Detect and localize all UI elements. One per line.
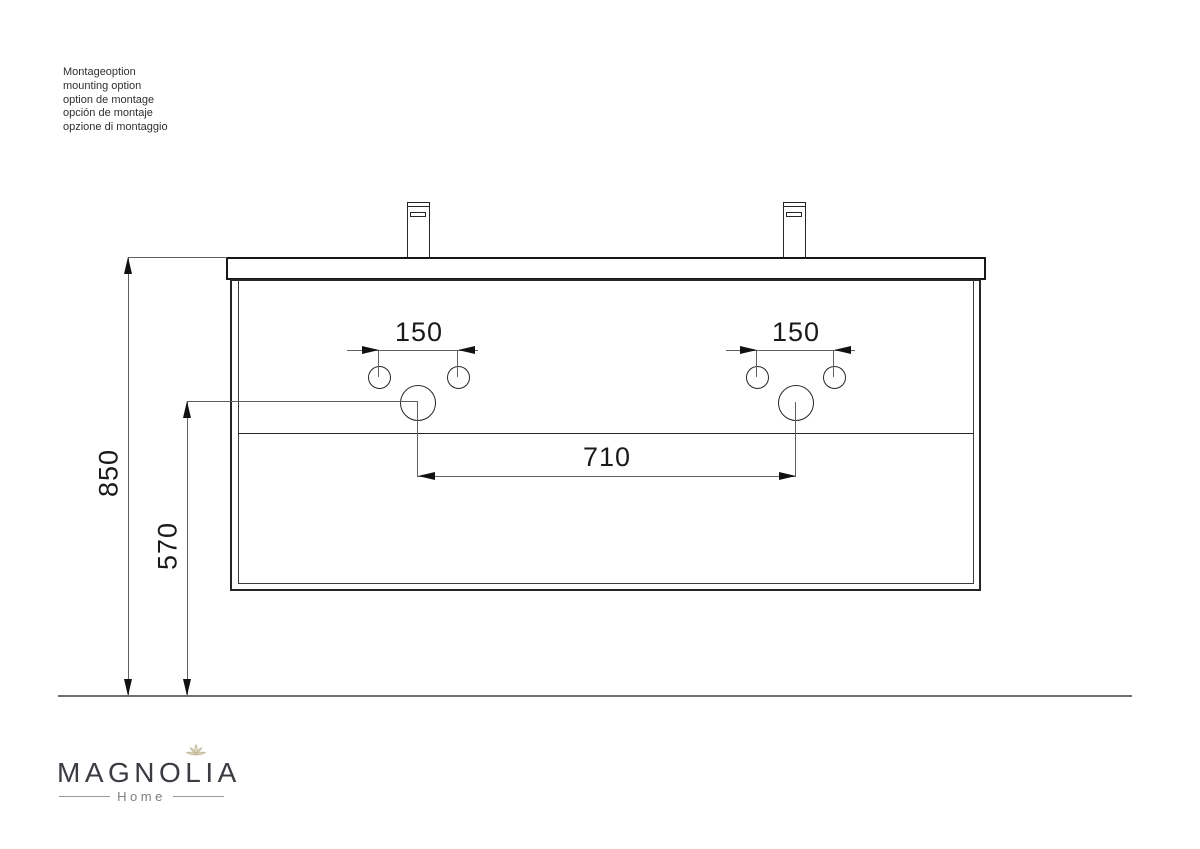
dim-150-left-arrow-icon: [362, 346, 379, 354]
faucet-hole-left-1: [368, 366, 391, 389]
drawer-divider-line: [238, 433, 973, 434]
faucet-right-spout-slot: [786, 212, 802, 218]
dim-850-arrow-down-icon: [124, 679, 132, 696]
faucet-right: [783, 202, 806, 259]
dim-150-left-arrow-icon: [458, 346, 475, 354]
dim-150-left-tick-2: [457, 350, 458, 377]
mounting-option-notes: Montageoption mounting option option de …: [63, 66, 168, 135]
logo-rule-right: [173, 796, 224, 798]
dim-150-left-label: 150: [387, 317, 451, 348]
faucet-right-cap-line: [784, 206, 805, 207]
brand-logo-subtitle: Home: [59, 789, 224, 804]
dim-150-right-label: 150: [764, 317, 828, 348]
faucet-left-spout-slot: [410, 212, 426, 218]
dim-710-arrow-icon: [418, 472, 435, 480]
dim-570-line: [187, 401, 188, 696]
mounting-option-drawing-page: Montageoption mounting option option de …: [0, 0, 1200, 849]
dim-850-arrow-up-icon: [124, 257, 132, 274]
dim-150-right-tick-1: [756, 350, 757, 377]
note-line-fr: option de montage: [63, 94, 168, 108]
dim-570-arrow-down-icon: [183, 679, 191, 696]
note-line-it: opzione di montaggio: [63, 121, 168, 135]
dim-710-arrow-icon: [779, 472, 796, 480]
note-line-es: opción de montaje: [63, 107, 168, 121]
faucet-hole-right-2: [823, 366, 846, 389]
faucet-left-cap-line: [408, 206, 429, 207]
dim-150-right-tick-2: [833, 350, 834, 377]
logo-rule-left: [59, 796, 110, 798]
brand-logo-text: MAGNOLIA: [57, 757, 241, 789]
dim-570-ext-top: [188, 401, 418, 402]
note-line-en: mounting option: [63, 80, 168, 94]
dim-150-right-arrow-icon: [740, 346, 757, 354]
cabinet-inner-panel-line: [238, 280, 974, 584]
dim-710-line: [417, 476, 796, 477]
dim-850-ext-top: [128, 257, 227, 258]
dim-850-line: [128, 258, 129, 696]
dim-710-label: 710: [575, 442, 639, 473]
floor-line: [58, 695, 1132, 697]
dim-710-ext-right: [795, 402, 796, 477]
dim-150-left-tick-1: [378, 350, 379, 377]
faucet-left: [407, 202, 430, 259]
faucet-hole-left-2: [447, 366, 470, 389]
dim-570-arrow-up-icon: [183, 401, 191, 418]
logo-subtitle-text: Home: [117, 789, 166, 804]
vanity-cabinet: [230, 279, 981, 591]
dim-710-ext-left: [417, 402, 418, 477]
dim-570-label: 570: [153, 522, 184, 570]
faucet-hole-right-1: [746, 366, 769, 389]
dim-150-right-arrow-icon: [834, 346, 851, 354]
note-line-de: Montageoption: [63, 66, 168, 80]
dim-850-label: 850: [94, 449, 125, 497]
washbasin-countertop: [226, 257, 986, 280]
